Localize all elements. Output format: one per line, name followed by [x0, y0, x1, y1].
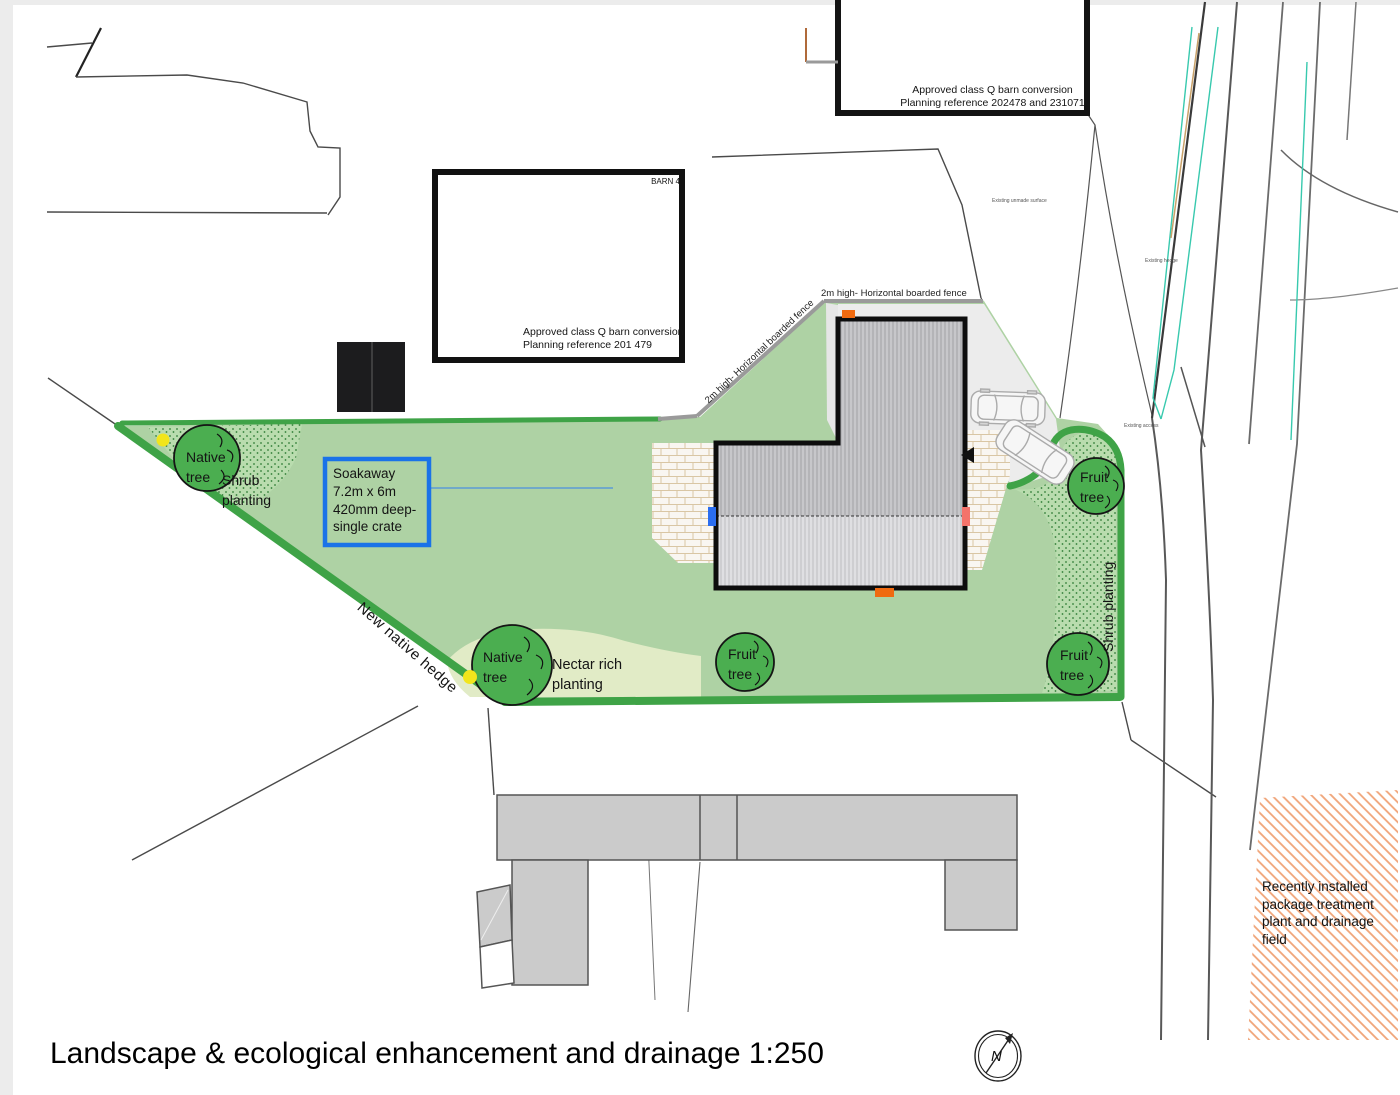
yellow-dot-sw — [463, 670, 477, 684]
marker-orange-bottom — [875, 588, 894, 597]
main-building — [708, 310, 974, 597]
black-store — [337, 342, 405, 412]
native-tree-sw — [472, 625, 552, 705]
yellow-dot-nw — [157, 434, 170, 447]
upper-barn — [806, 0, 1087, 113]
marker-orange-top — [842, 310, 855, 318]
native-tree-nw — [174, 425, 240, 491]
marker-red-east — [962, 507, 970, 526]
north-arrow-icon — [975, 1031, 1021, 1081]
treatment-area — [1248, 790, 1398, 1040]
site-plan-canvas — [0, 0, 1400, 1095]
marker-blue-west — [708, 507, 716, 526]
fruit-tree-ne — [1068, 458, 1124, 514]
farm-buildings — [477, 795, 1017, 988]
paving-west — [652, 443, 716, 563]
fruit-tree-se — [1047, 633, 1109, 695]
fruit-tree-mid — [716, 633, 774, 691]
site-plan-page: { "page": { "title": "Landscape & ecolog… — [0, 0, 1400, 1095]
barn4-outline — [435, 172, 682, 360]
